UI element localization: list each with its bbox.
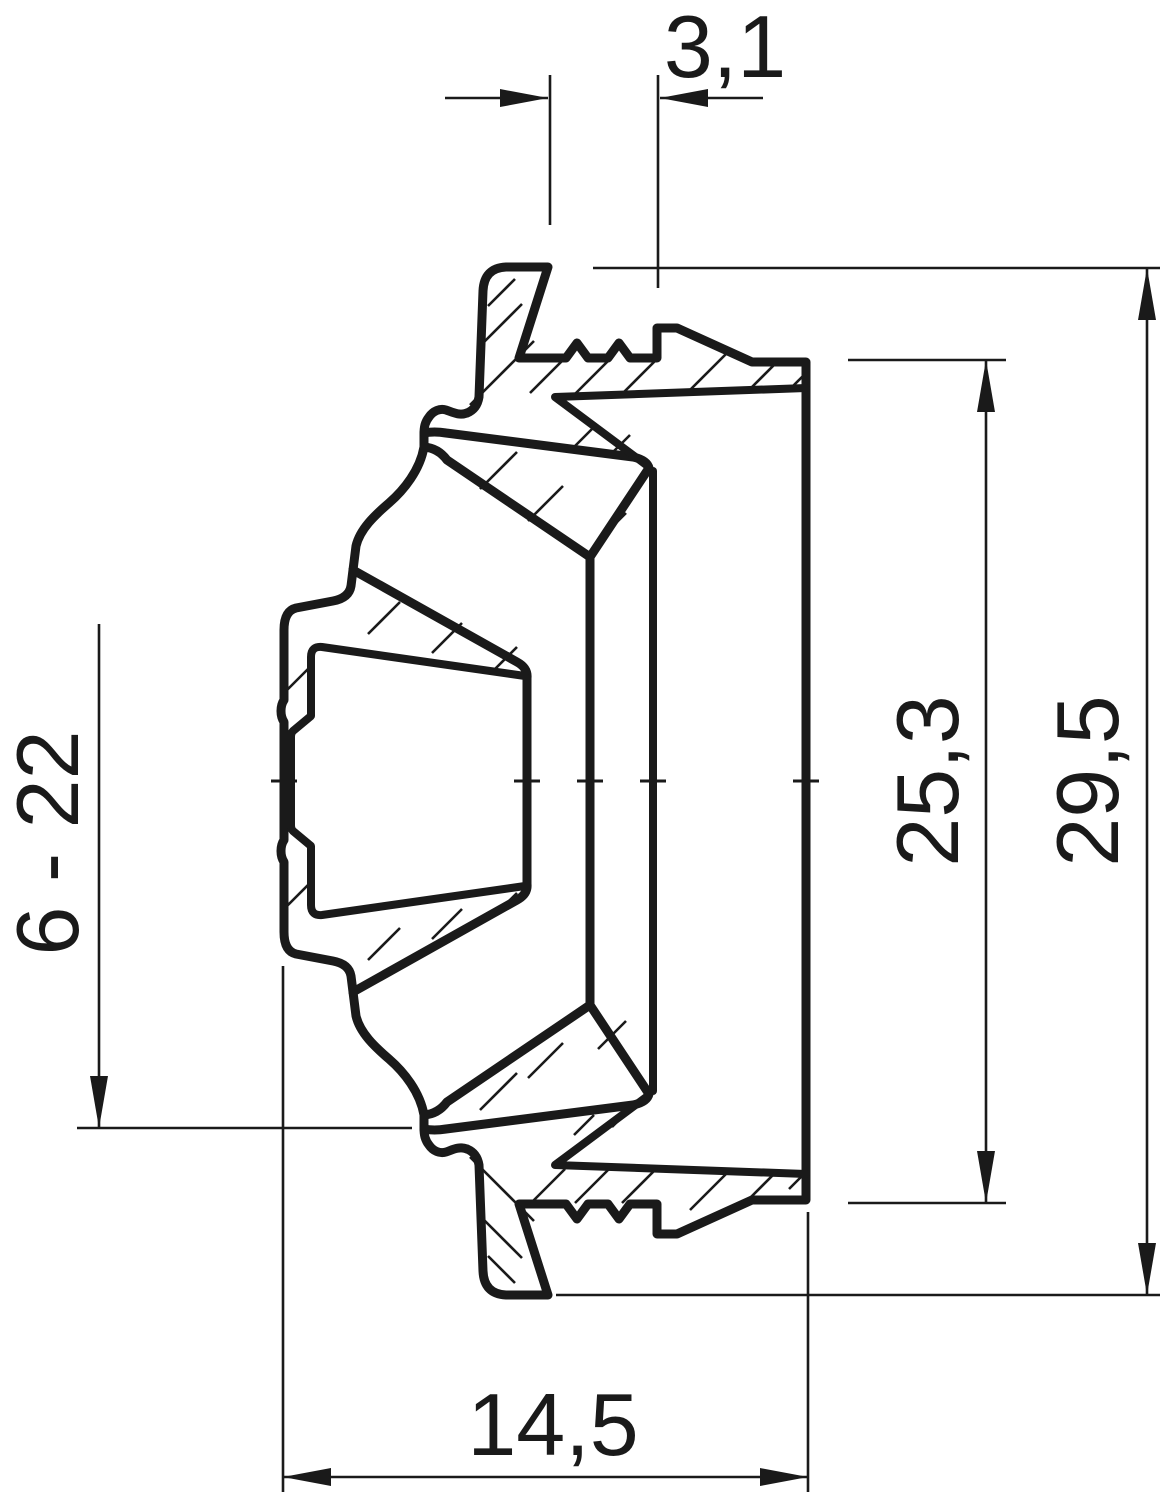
profile-third-lamella [353,570,527,992]
arrowhead-left-icon [283,1468,331,1486]
membrane-recess [291,647,525,915]
grommet-cross-section-drawing: 3,1 25,3 29,5 6 - 22 [0,0,1167,1498]
arrowhead-down-icon [90,1076,108,1128]
arrowhead-right-icon [500,89,548,107]
dim-outer-height-label: 29,5 [1038,695,1137,866]
dimension-step-wall-width: 3,1 [445,0,786,288]
arrowhead-up-icon [1138,268,1156,320]
dim-inner-height-label: 25,3 [878,695,977,866]
arrowhead-down-icon [977,1151,995,1203]
arrowhead-up-icon [977,360,995,412]
dim-clamping-range-label: 6 - 22 [0,730,97,955]
section-hatching [287,279,806,1283]
arrowhead-right-icon [760,1468,808,1486]
technical-drawing-page: 3,1 25,3 29,5 6 - 22 [0,0,1167,1498]
arrowhead-down-icon [1138,1243,1156,1295]
dimension-inner-height: 25,3 [848,360,1006,1203]
dim-depth-label: 14,5 [467,1375,638,1474]
dim-step-wall-width-label: 3,1 [664,0,786,96]
profile-outline [281,267,806,1295]
dimension-clamping-range: 6 - 22 [0,624,412,1128]
dimension-depth: 14,5 [283,966,808,1492]
profile-second-lamella-inner-lower [424,1005,590,1115]
